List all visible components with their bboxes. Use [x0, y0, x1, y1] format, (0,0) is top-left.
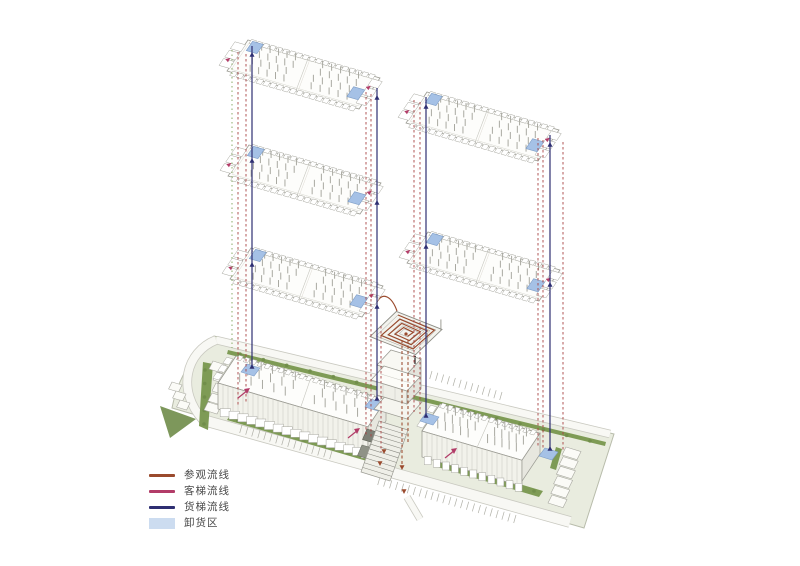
visitor-entry-curve	[377, 296, 397, 311]
floor-plate-left-1	[219, 39, 382, 111]
legend-swatch-passenger	[149, 490, 175, 494]
legend-label-unloading: 卸货区	[184, 518, 219, 529]
legend-label-freight: 货梯流线	[184, 502, 230, 513]
legend-item-unloading: 卸货区	[149, 518, 230, 529]
floor-plate-left-2	[220, 144, 383, 216]
legend-swatch-visitor	[149, 474, 175, 478]
legend: 参观流线客梯流线货梯流线卸货区	[149, 470, 230, 534]
floor-plate-left-3	[222, 247, 385, 319]
diagram-canvas: 参观流线客梯流线货梯流线卸货区	[0, 0, 800, 566]
legend-item-passenger: 客梯流线	[149, 486, 230, 497]
spiral-ramp	[370, 296, 442, 354]
floor-plate-right-2	[399, 231, 562, 303]
axonometric-diagram	[0, 0, 800, 566]
legend-swatch-freight	[149, 506, 175, 510]
legend-label-passenger: 客梯流线	[184, 486, 230, 497]
legend-item-visitor: 参观流线	[149, 470, 230, 481]
legend-label-visitor: 参观流线	[184, 470, 230, 481]
legend-swatch-unloading	[149, 518, 175, 529]
legend-item-freight: 货梯流线	[149, 502, 230, 513]
floor-plate-right-1	[398, 91, 561, 163]
